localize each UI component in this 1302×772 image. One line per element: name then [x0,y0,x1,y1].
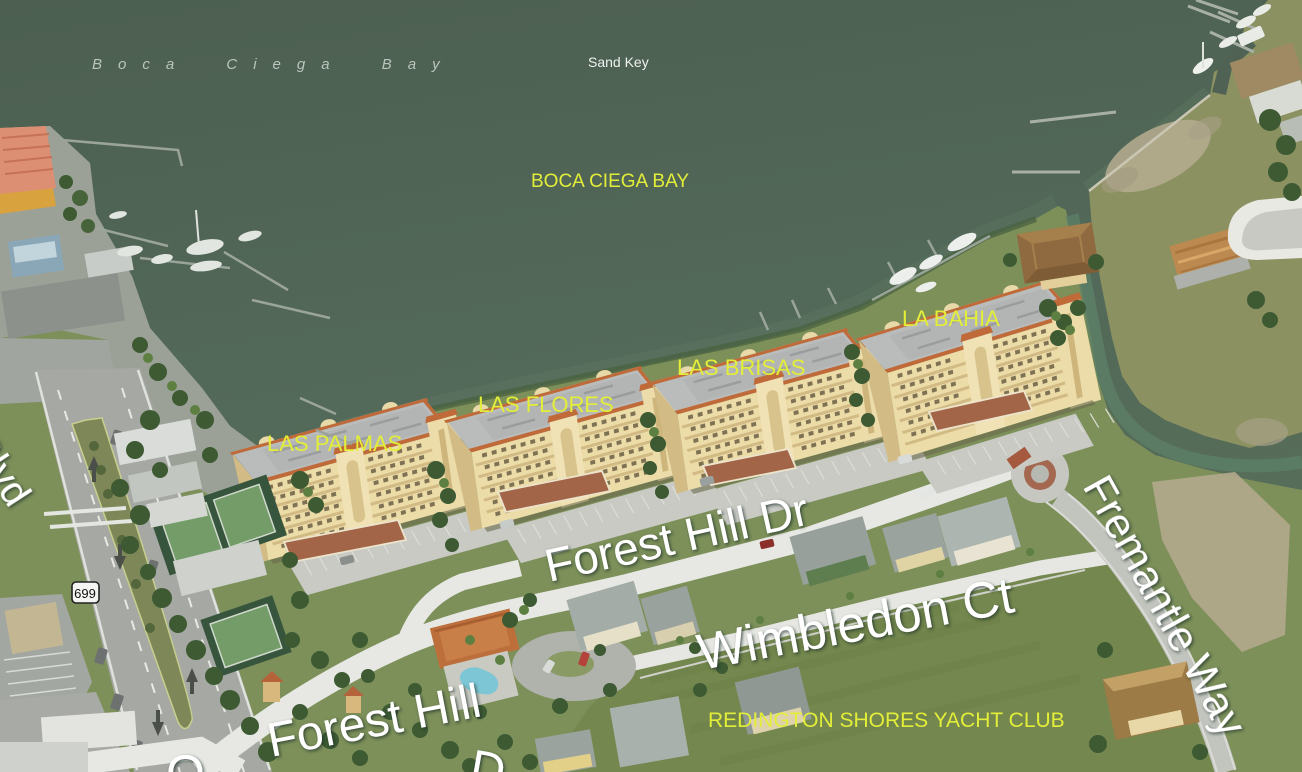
svg-text:Sand Key: Sand Key [588,54,649,70]
svg-text:O: O [166,745,205,772]
svg-text:REDINGTON SHORES YACHT CLUB: REDINGTON SHORES YACHT CLUB [708,709,1065,732]
svg-text:LAS FLORES: LAS FLORES [478,392,614,417]
svg-text:LAS BRISAS: LAS BRISAS [677,355,805,380]
svg-text:LA BAHIA: LA BAHIA [902,306,1000,331]
svg-text:699: 699 [74,586,96,601]
svg-text:Boca Ciega Bay: Boca Ciega Bay [92,56,456,73]
svg-text:BOCA CIEGA BAY: BOCA CIEGA BAY [531,171,689,192]
svg-text:LAS PALMAS: LAS PALMAS [267,431,402,456]
